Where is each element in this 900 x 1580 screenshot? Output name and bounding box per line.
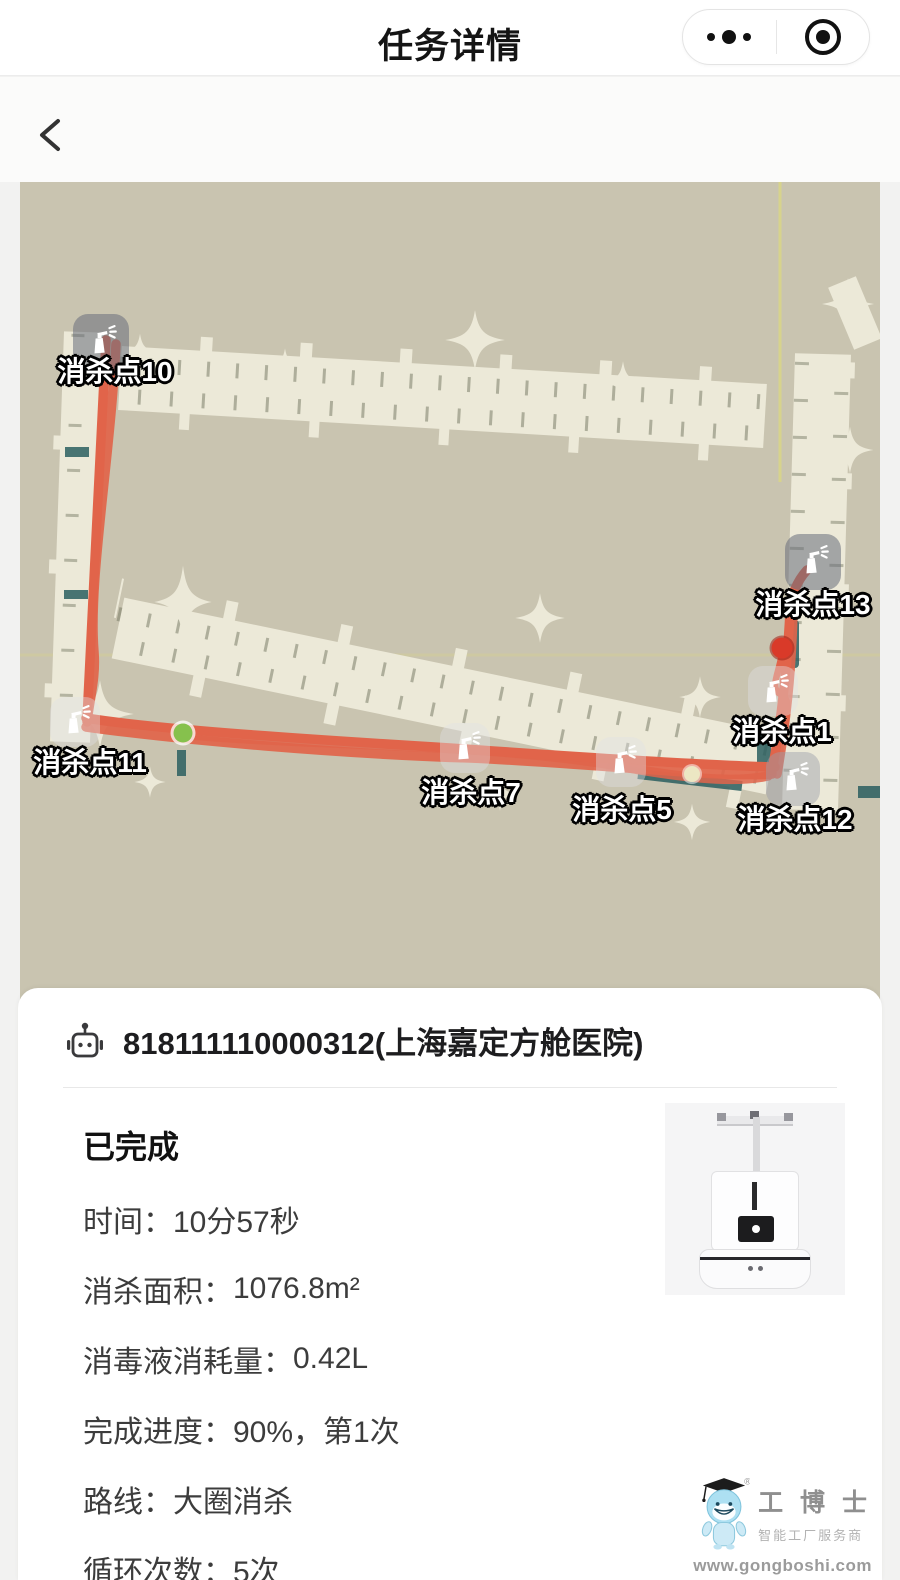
task-row-value: 90%，第1次 bbox=[233, 1407, 400, 1451]
task-row-value: 10分57秒 bbox=[173, 1197, 300, 1241]
task-row-label: 消毒液消耗量： bbox=[83, 1337, 293, 1381]
task-row-label: 完成进度： bbox=[83, 1407, 233, 1451]
spray-point-icon bbox=[748, 666, 798, 716]
watermark-slogan: 智能工厂服务商 bbox=[758, 1525, 872, 1544]
task-detail-row: 时间：10分57秒 bbox=[83, 1184, 643, 1254]
more-menu-button[interactable] bbox=[683, 10, 776, 64]
ellipsis-icon bbox=[722, 30, 736, 44]
wechat-capsule bbox=[682, 9, 870, 65]
spray-point-icon bbox=[785, 534, 841, 590]
task-row-label: 路线： bbox=[83, 1477, 173, 1521]
task-row-label: 消杀面积： bbox=[83, 1267, 233, 1311]
spray-point-icon bbox=[50, 697, 100, 747]
divider bbox=[63, 1087, 837, 1088]
robot-product-image bbox=[665, 1103, 845, 1295]
watermark-url: www.gongboshi.com bbox=[693, 1556, 872, 1576]
toolbar bbox=[0, 77, 900, 182]
task-row-value: 5次 bbox=[233, 1547, 280, 1580]
waypoint-dot-pale bbox=[684, 766, 700, 782]
task-detail-row: 循环次数：5次 bbox=[83, 1534, 643, 1580]
map-overlay: 消杀点10消杀点13消杀点1消杀点11消杀点7消杀点5消杀点12 bbox=[20, 182, 880, 1008]
ellipsis-icon bbox=[743, 33, 751, 41]
task-row-value: 0.42L bbox=[293, 1342, 368, 1376]
nav-bar: 任务详情 bbox=[0, 0, 900, 76]
spray-point-label: 消杀点11 bbox=[33, 741, 147, 781]
device-id-title: 818111110000312(上海嘉定方舱医院) bbox=[123, 1018, 643, 1063]
spray-point-label: 消杀点13 bbox=[755, 583, 870, 623]
watermark-brand: 工 博 士 bbox=[758, 1483, 872, 1519]
task-row-label: 时间： bbox=[83, 1197, 173, 1241]
close-miniprogram-button[interactable] bbox=[777, 10, 870, 64]
task-detail-row: 消杀面积：1076.8m² bbox=[83, 1254, 643, 1324]
spray-point-label: 消杀点5 bbox=[572, 788, 672, 828]
task-row-value: 1076.8m² bbox=[233, 1272, 360, 1306]
task-detail-row: 完成进度：90%，第1次 bbox=[83, 1394, 643, 1464]
task-detail-row: 路线：大圈消杀 bbox=[83, 1464, 643, 1534]
facility-map: 消杀点10消杀点13消杀点1消杀点11消杀点7消杀点5消杀点12 bbox=[20, 182, 880, 1008]
spray-point-label: 消杀点7 bbox=[421, 771, 521, 811]
ellipsis-icon bbox=[707, 33, 715, 41]
svg-text:®: ® bbox=[744, 1476, 750, 1487]
spray-point-icon bbox=[596, 737, 646, 787]
chevron-left-icon bbox=[34, 117, 68, 153]
robot-icon bbox=[63, 1021, 107, 1061]
watermark: ® 工 博 士 智能工厂服务商 bbox=[698, 1476, 872, 1550]
robot-position-dot bbox=[772, 638, 793, 659]
task-detail-list: 时间：10分57秒消杀面积：1076.8m²消毒液消耗量：0.42L完成进度：9… bbox=[83, 1184, 643, 1580]
back-button[interactable] bbox=[34, 117, 68, 153]
task-row-value: 大圈消杀 bbox=[173, 1477, 293, 1521]
spray-point-icon bbox=[440, 723, 490, 773]
task-row-label: 循环次数： bbox=[83, 1547, 233, 1580]
spray-point-label: 消杀点12 bbox=[737, 798, 852, 838]
target-icon bbox=[805, 19, 841, 55]
task-detail-card: 818111110000312(上海嘉定方舱医院) 已完成 时间：10分57秒消… bbox=[18, 988, 882, 1580]
device-header: 818111110000312(上海嘉定方舱医院) bbox=[18, 988, 882, 1063]
waypoint-dot-green bbox=[174, 724, 193, 743]
spray-point-label: 消杀点1 bbox=[732, 710, 832, 750]
spray-point-label: 消杀点10 bbox=[57, 350, 172, 390]
task-detail-screen: 任务详情 bbox=[0, 0, 900, 1580]
mascot-icon: ® bbox=[698, 1476, 750, 1550]
task-detail-row: 消毒液消耗量：0.42L bbox=[83, 1324, 643, 1394]
